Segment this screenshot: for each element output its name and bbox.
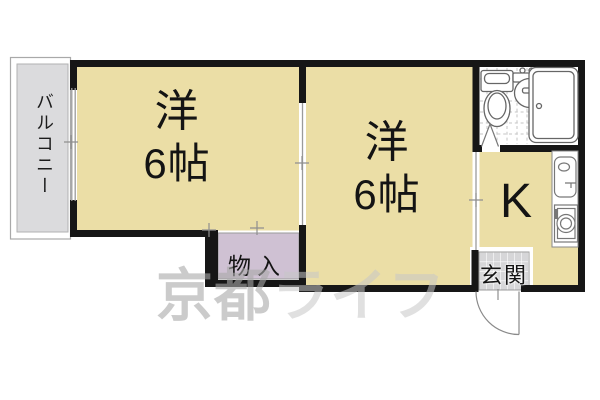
room2-label: 洋 6帖 — [317, 117, 457, 221]
balcony-window — [72, 88, 75, 201]
storage-label: 物入 — [212, 247, 302, 281]
entrance-label: 玄関 — [469, 258, 539, 290]
kitchen-sink-icon — [555, 157, 577, 197]
bathtub-icon — [529, 68, 578, 143]
room2-name: 洋 — [317, 117, 457, 169]
toilet-icon — [481, 71, 513, 127]
room1-size: 6帖 — [107, 138, 247, 190]
room2-size: 6帖 — [317, 169, 457, 221]
kitchen-counter — [552, 151, 578, 247]
floorplan: 洋 6帖 洋 6帖 K 玄関 物入 バルコニー 京都ライフ — [0, 0, 600, 400]
stove-icon — [555, 205, 578, 242]
balcony-label: バルコニー — [31, 92, 57, 212]
kitchen-label: K — [500, 174, 532, 229]
room1-name: 洋 — [107, 86, 247, 138]
room1-label: 洋 6帖 — [107, 86, 247, 190]
